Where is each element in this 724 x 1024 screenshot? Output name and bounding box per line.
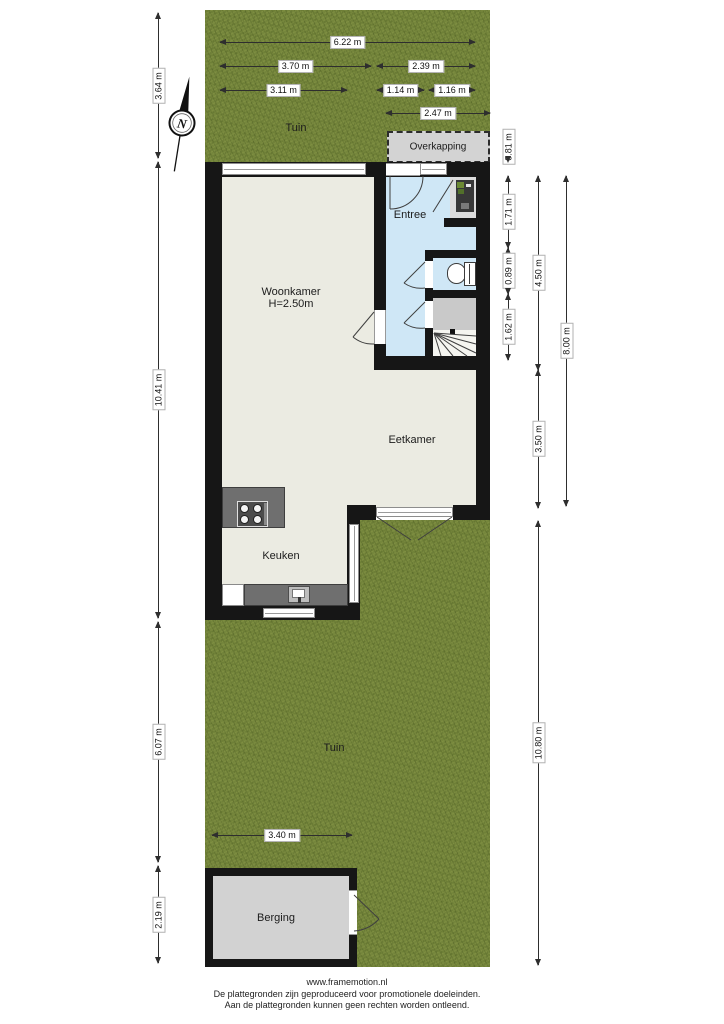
dimension-219: 2.19 m bbox=[158, 866, 159, 963]
kitchen-appliance bbox=[222, 584, 244, 606]
dimension-239: 2.39 m bbox=[377, 66, 475, 67]
dimension-label: 1.14 m bbox=[383, 84, 419, 97]
stove-knobs bbox=[264, 503, 267, 525]
dimension-label: 3.50 m bbox=[533, 421, 546, 457]
dimension-label: 6.22 m bbox=[330, 36, 366, 49]
wall-toilet-bottom bbox=[425, 290, 490, 298]
footer-disclaimer-1: De plattegronden zijn geproduceerd voor … bbox=[122, 989, 572, 1001]
dimension-364: 3.64 m bbox=[158, 13, 159, 158]
dimension-114: 1.14 m bbox=[377, 90, 424, 91]
french-door-frame bbox=[376, 507, 453, 517]
dimension-247: 2.47 m bbox=[386, 113, 490, 114]
kitchen-counter-stove bbox=[222, 487, 285, 528]
dimension-116: 1.16 m bbox=[429, 90, 475, 91]
garden-side bbox=[360, 520, 490, 620]
svg-text:N: N bbox=[175, 115, 188, 132]
dimension-607: 6.07 m bbox=[158, 622, 159, 862]
dimension-label: 3.70 m bbox=[278, 60, 314, 73]
dimension-label: 1.16 m bbox=[434, 84, 470, 97]
floor-woonkamer-east bbox=[347, 177, 376, 505]
meterkast-detail bbox=[461, 203, 469, 209]
landing-door-opening bbox=[425, 301, 433, 328]
stair-newel-post bbox=[450, 329, 455, 334]
dimension-label: 6.07 m bbox=[153, 724, 166, 760]
wall-hall-bottom bbox=[374, 356, 490, 370]
dimension-label: 2.47 m bbox=[420, 107, 456, 120]
dimension-1080: 10.80 m bbox=[538, 521, 539, 965]
stove bbox=[237, 501, 268, 527]
dimension-370: 3.70 m bbox=[220, 66, 371, 67]
dimension-label: 2.19 m bbox=[153, 897, 166, 933]
dimension-label: 0.81 m bbox=[503, 129, 516, 165]
dimension-350: 3.50 m bbox=[538, 370, 539, 508]
dimension-089: 0.89 m bbox=[508, 248, 509, 294]
dimension-label: 1.71 m bbox=[503, 194, 516, 230]
dimension-450: 4.50 m bbox=[538, 176, 539, 370]
berging-door-opening bbox=[349, 890, 357, 935]
stove-burner bbox=[253, 504, 262, 513]
wall-niche-bottom bbox=[444, 218, 490, 227]
wall-left bbox=[205, 162, 222, 620]
wall-right bbox=[476, 162, 490, 520]
floor-entree-corridor bbox=[386, 250, 425, 356]
wall-toilet-top bbox=[425, 250, 490, 258]
toilet-fixture bbox=[447, 262, 477, 286]
room-label-tuin-bottom: Tuin bbox=[324, 742, 345, 754]
room-label-woonkamer: Woonkamer bbox=[261, 286, 320, 298]
dimension-162: 1.62 m bbox=[508, 294, 509, 360]
dimension-label: 3.40 m bbox=[264, 829, 300, 842]
room-label-entree: Entree bbox=[394, 209, 426, 221]
meterkast-plant bbox=[458, 189, 464, 194]
floorplan-canvas: N Tuin Overkapping Entree Woonkamer H=2.… bbox=[0, 0, 724, 1024]
dimension-label: 8.00 m bbox=[561, 323, 574, 359]
stove-burner bbox=[253, 515, 262, 524]
dimension-340: 3.40 m bbox=[212, 835, 352, 836]
dimension-label: 4.50 m bbox=[533, 255, 546, 291]
window-kitchen-south bbox=[263, 608, 315, 618]
toilet-tank bbox=[464, 262, 476, 286]
floor-woonkamer-keuken bbox=[222, 177, 347, 606]
room-label-keuken: Keuken bbox=[262, 550, 299, 562]
dimension-label: 10.80 m bbox=[533, 723, 546, 764]
room-label-berging: Berging bbox=[257, 912, 295, 924]
wall-eetkamer-bottom-east bbox=[453, 505, 490, 520]
sink-faucet bbox=[298, 597, 301, 603]
meterkast-plant bbox=[457, 182, 464, 188]
dimension-label: 2.39 m bbox=[408, 60, 444, 73]
stove-burner bbox=[240, 515, 249, 524]
footer-disclaimer-2: Aan de plattegronden kunnen geen rechten… bbox=[122, 1000, 572, 1012]
dimension-1041: 10.41 m bbox=[158, 162, 159, 618]
floor-stair-landing bbox=[433, 298, 476, 330]
meterkast-fixture bbox=[456, 180, 474, 212]
kitchen-sink bbox=[288, 586, 310, 603]
floor-entree-mid bbox=[386, 227, 476, 250]
front-door-opening bbox=[386, 163, 420, 176]
room-label-tuin-top: Tuin bbox=[286, 122, 307, 134]
dimension-622: 6.22 m bbox=[220, 42, 475, 43]
toilet-door-opening bbox=[425, 261, 433, 288]
dimension-800: 8.00 m bbox=[566, 176, 567, 506]
dimension-label: 0.89 m bbox=[503, 253, 516, 289]
dimension-label: 3.64 m bbox=[153, 68, 166, 104]
room-label-eetkamer: Eetkamer bbox=[388, 434, 435, 446]
dimension-label: 10.41 m bbox=[153, 370, 166, 411]
toilet-tank-line bbox=[469, 264, 470, 284]
dimension-171: 1.71 m bbox=[508, 176, 509, 248]
dimension-081: 0.81 m bbox=[508, 131, 509, 162]
window-kitchen-east bbox=[349, 524, 359, 603]
room-label-woonkamer-height: H=2.50m bbox=[269, 298, 314, 310]
dimension-label: 3.11 m bbox=[266, 84, 301, 97]
stove-burner bbox=[240, 504, 249, 513]
footer: www.framemotion.nl De plattegronden zijn… bbox=[122, 977, 572, 1012]
woonkamer-door-opening bbox=[374, 310, 386, 344]
window-woonkamer-north bbox=[222, 163, 366, 175]
dimension-label: 1.62 m bbox=[503, 309, 516, 345]
meterkast-detail bbox=[466, 184, 471, 187]
dimension-311: 3.11 m bbox=[220, 90, 347, 91]
room-label-overkapping: Overkapping bbox=[410, 142, 467, 153]
window-entree-north bbox=[420, 163, 447, 175]
footer-url: www.framemotion.nl bbox=[122, 977, 572, 989]
